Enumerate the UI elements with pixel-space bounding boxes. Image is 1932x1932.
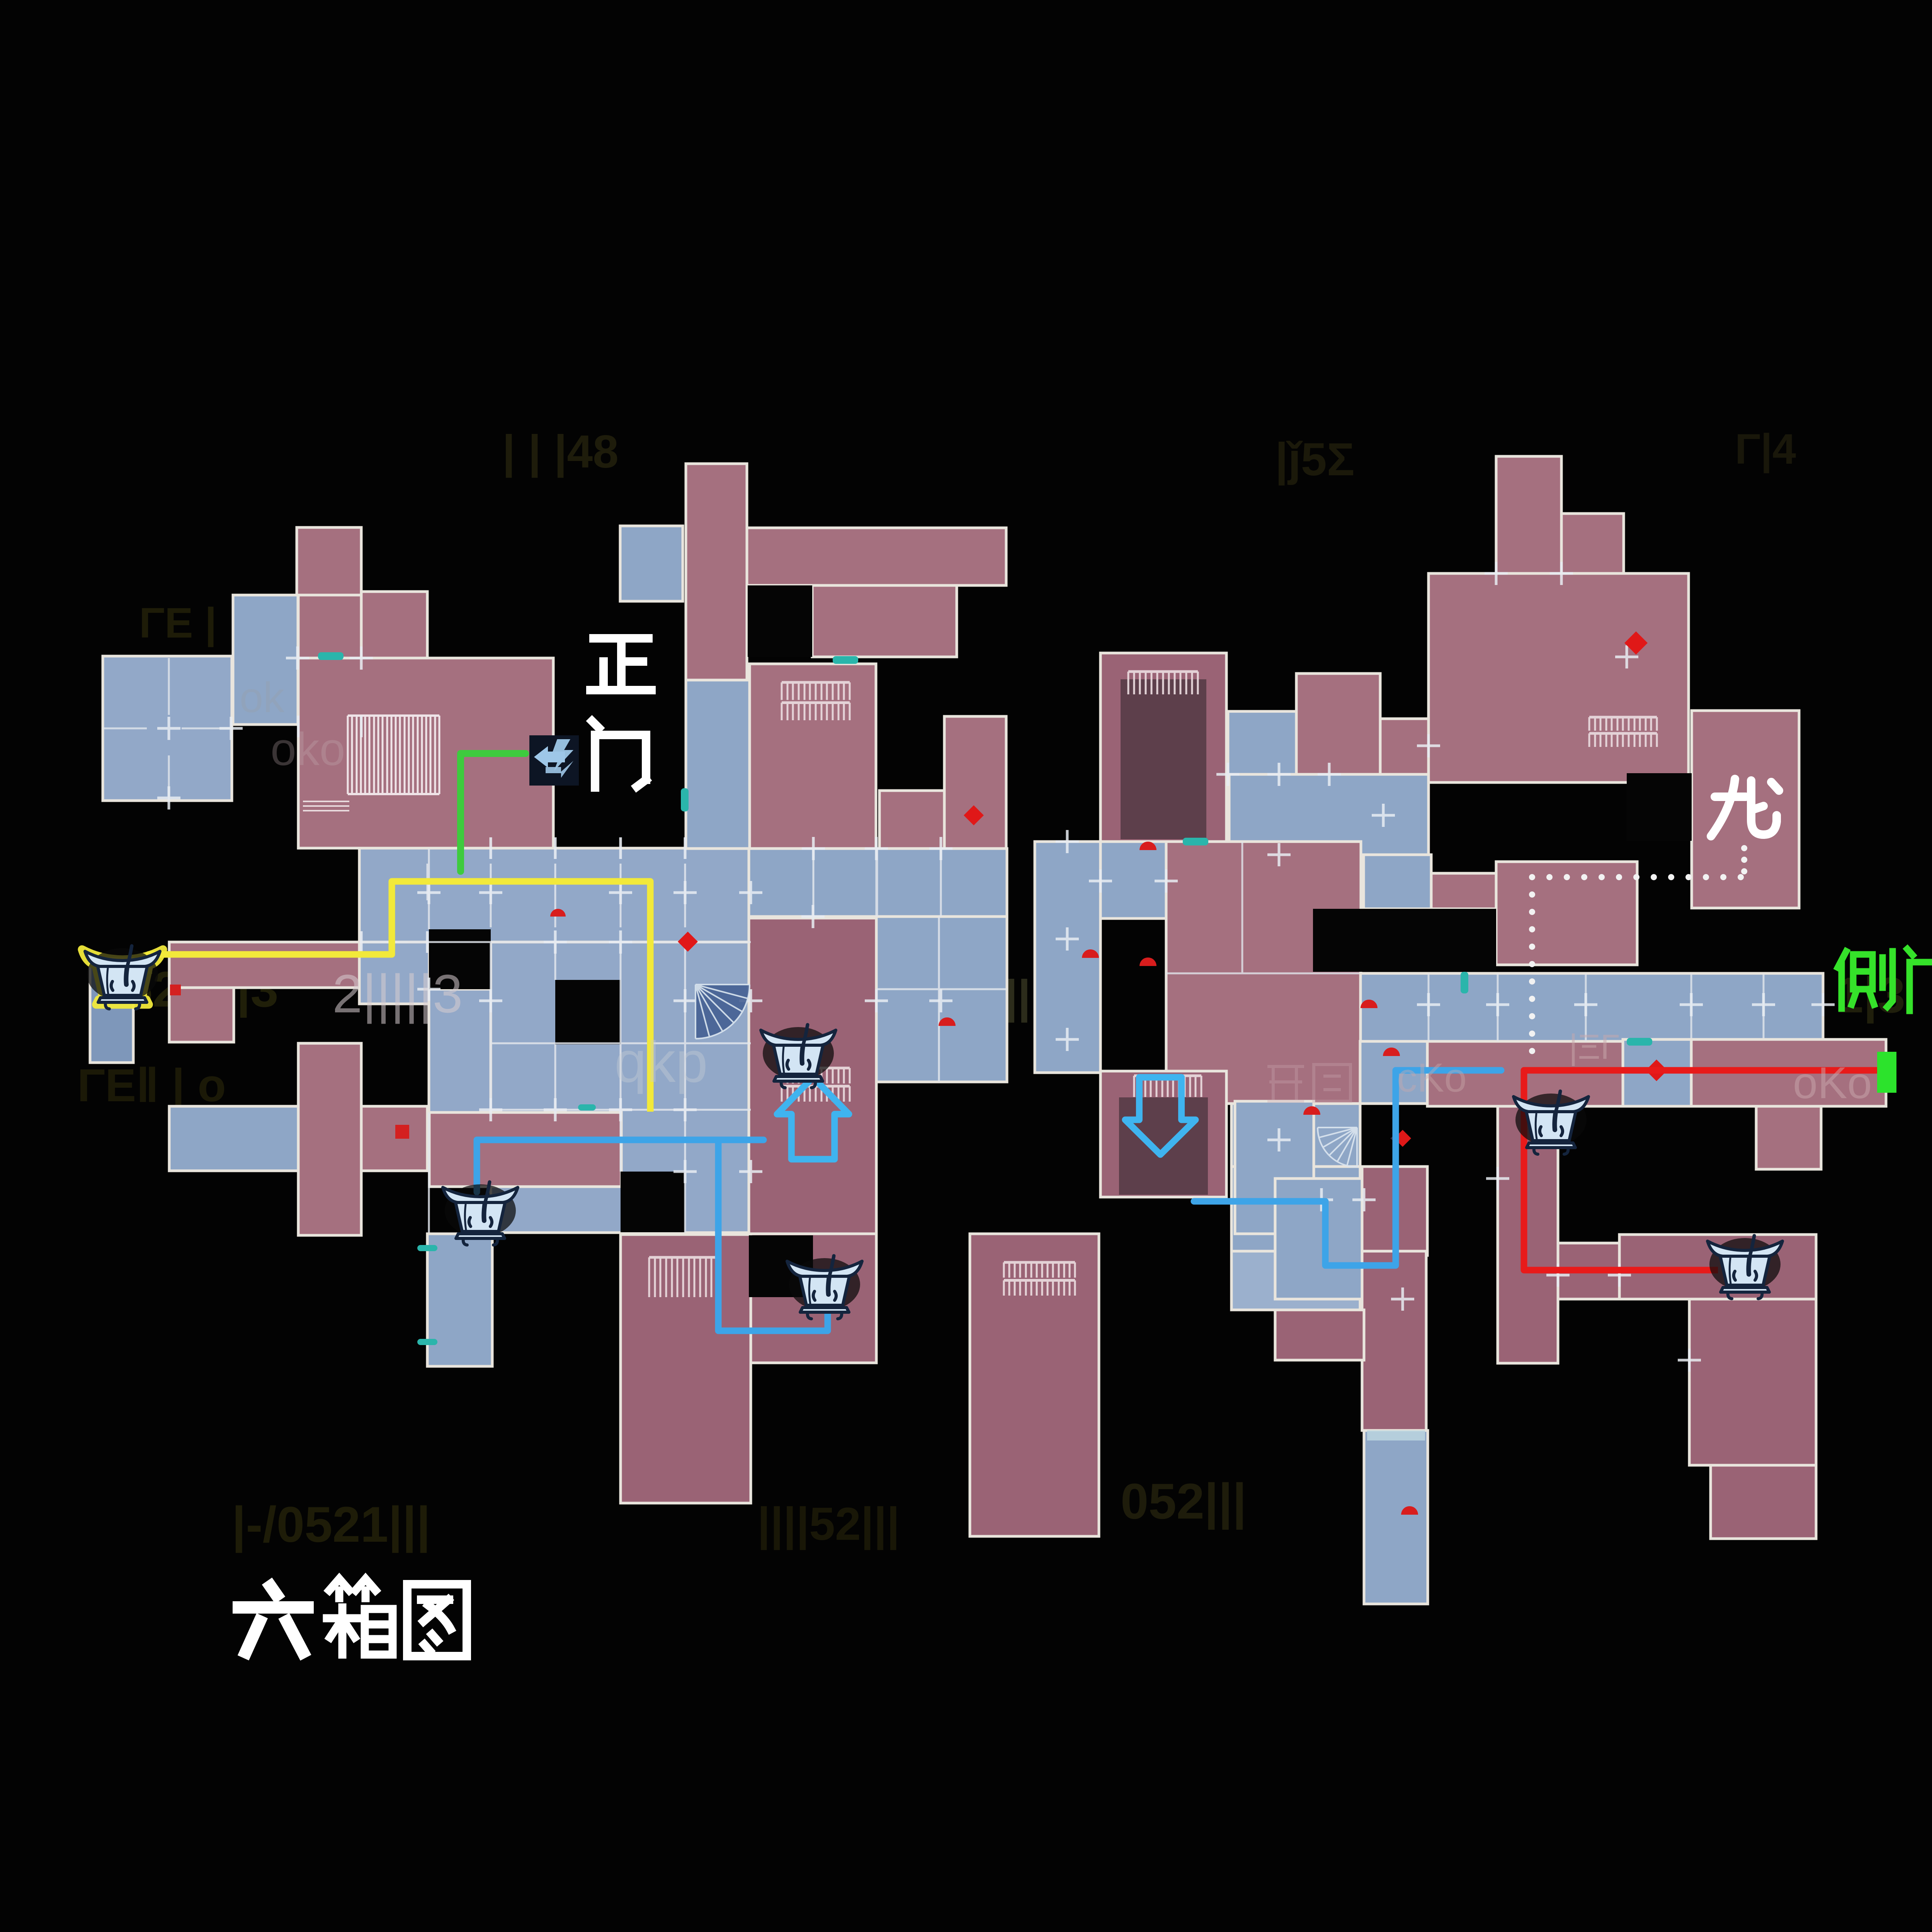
svg-text:| | |48: | | |48 bbox=[502, 426, 619, 478]
svg-text:052|||: 052||| bbox=[1121, 1473, 1247, 1530]
svg-text:oKo: oKo bbox=[1793, 1058, 1872, 1108]
svg-text:||||52|||: ||||52||| bbox=[757, 1498, 900, 1550]
svg-text:cKo: cKo bbox=[1397, 1055, 1467, 1100]
svg-text:Γ|4: Γ|4 bbox=[1735, 425, 1796, 473]
svg-text:|ǰ5Σ: |ǰ5Σ bbox=[1275, 434, 1355, 486]
svg-text:2|||||3: 2|||||3 bbox=[332, 963, 463, 1024]
svg-text:oko: oko bbox=[270, 723, 345, 775]
svg-text:|-/0521|||: |-/0521||| bbox=[232, 1496, 430, 1553]
svg-text:|ΞΓ: |ΞΓ bbox=[1569, 1028, 1619, 1066]
svg-text:ok: ok bbox=[240, 674, 285, 721]
svg-text:qkp: qkp bbox=[614, 1029, 708, 1094]
svg-text:ΓEⅡ | o: ΓEⅡ | o bbox=[77, 1060, 226, 1112]
